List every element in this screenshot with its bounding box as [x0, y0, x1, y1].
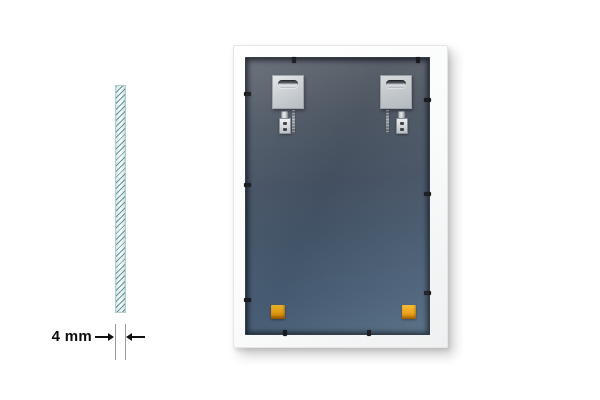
- retaining-tab: [367, 330, 371, 336]
- dimension-arrow-left-icon: [132, 336, 145, 338]
- keyhole-slot-icon: [278, 80, 298, 88]
- retaining-tab: [283, 330, 287, 336]
- retaining-tab: [424, 291, 431, 295]
- screw-right: [386, 110, 389, 134]
- retaining-tab: [244, 298, 251, 302]
- corner-bumper-left: [271, 305, 285, 319]
- screw-left: [292, 110, 295, 134]
- glass-cross-section: [115, 85, 126, 313]
- keyhole-slot-icon: [386, 80, 406, 88]
- retaining-tab: [244, 92, 251, 96]
- back-panel: [245, 57, 430, 335]
- mounting-bracket-right: [396, 118, 408, 134]
- retaining-tab: [424, 192, 431, 196]
- hanging-plate-right: [380, 75, 412, 109]
- product-diagram: 4 mm: [0, 0, 600, 400]
- mirror-frame-back: [233, 45, 448, 348]
- hanging-plate-left: [272, 75, 304, 109]
- retaining-tab: [416, 57, 420, 63]
- retaining-tab: [424, 98, 431, 102]
- dimension-arrow-right-icon: [95, 336, 108, 338]
- mounting-bracket-left: [279, 118, 291, 134]
- dimension-extension-line-left: [115, 324, 116, 360]
- retaining-tab: [244, 183, 251, 187]
- retaining-tab: [292, 57, 296, 63]
- dimension-extension-line-right: [125, 324, 126, 360]
- corner-bumper-right: [402, 305, 416, 319]
- dimension-label: 4 mm: [36, 328, 92, 345]
